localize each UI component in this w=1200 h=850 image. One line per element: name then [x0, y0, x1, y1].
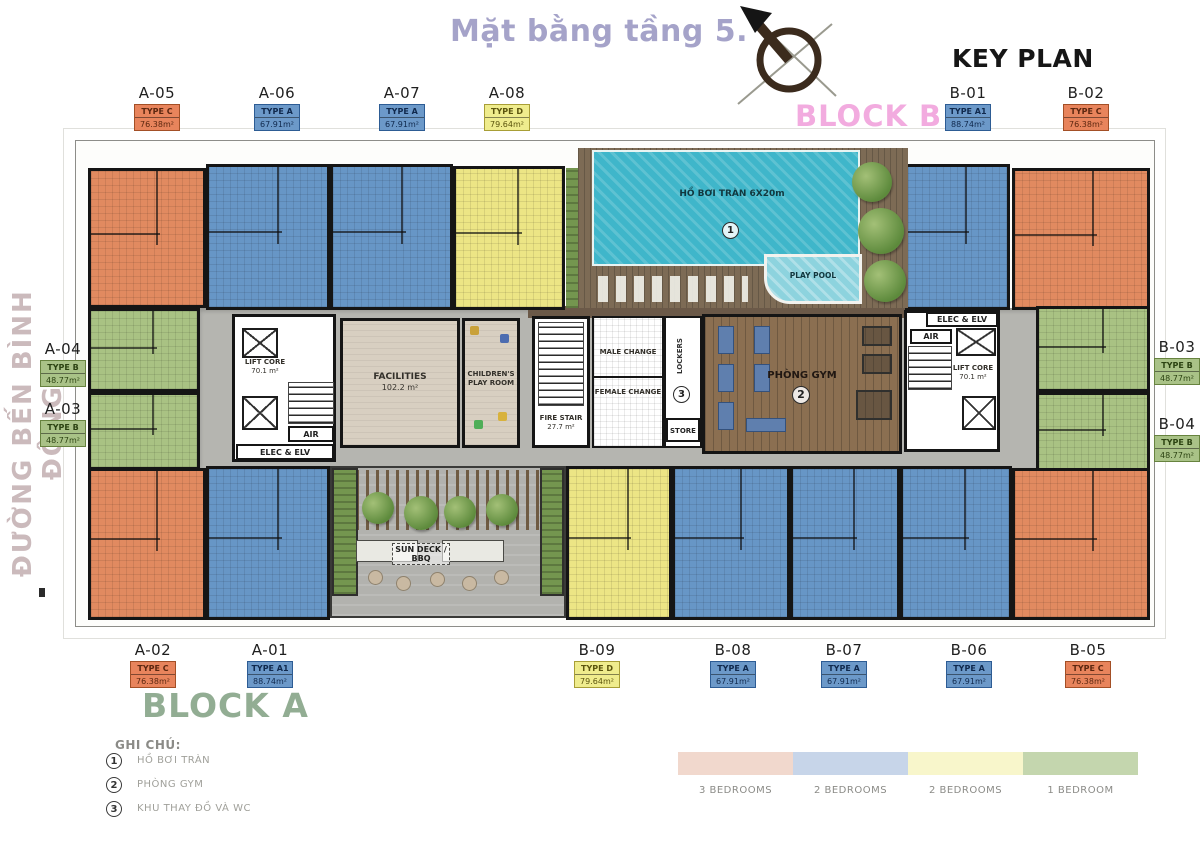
legend-swatch	[1023, 752, 1138, 775]
unit-callout-b-02: B-02TYPE C76.38m²	[1053, 84, 1119, 131]
deck-table	[368, 570, 383, 585]
unit-a01	[206, 466, 330, 620]
female-change-label: FEMALE CHANGE	[592, 388, 664, 397]
unit-a03	[88, 392, 200, 470]
unit-type: TYPE A	[822, 662, 866, 675]
bedroom-legend-swatches	[678, 752, 1138, 775]
children-room-label: CHILDREN'S PLAY ROOM	[462, 370, 520, 388]
unit-callout-a-05: A-05TYPE C76.38m²	[124, 84, 190, 131]
unit-type-badge: TYPE C76.38m²	[130, 661, 176, 688]
legend-swatch	[908, 752, 1023, 775]
room-area: 70.1 m²	[234, 367, 296, 376]
unit-type-badge: TYPE C76.38m²	[134, 104, 180, 131]
unit-type-badge: TYPE B48.77m²	[1154, 358, 1200, 385]
unit-type-badge: TYPE A67.91m²	[946, 661, 992, 688]
unit-area: 48.77m²	[1155, 449, 1199, 461]
unit-callout-a-02: A-02TYPE C76.38m²	[120, 641, 186, 688]
bedroom-legend-labels: 3 BEDROOMS2 BEDROOMS2 BEDROOMS1 BEDROOM	[678, 785, 1138, 796]
tree	[864, 260, 906, 302]
unit-type-badge: TYPE B48.77m²	[40, 420, 86, 447]
pool-marker: 1	[722, 222, 739, 239]
legend-label: 3 BEDROOMS	[678, 785, 793, 796]
unit-area: 76.38m²	[1066, 675, 1110, 687]
unit-id: B-03	[1144, 338, 1200, 356]
unit-type: TYPE A	[380, 105, 424, 118]
unit-id: B-06	[936, 641, 1002, 659]
unit-id: A-07	[369, 84, 435, 102]
stairs	[288, 382, 334, 424]
unit-id: B-01	[935, 84, 1001, 102]
unit-type-badge: TYPE A67.91m²	[379, 104, 425, 131]
unit-type-badge: TYPE A188.74m²	[247, 661, 293, 688]
air-room-right: AIR	[910, 329, 952, 344]
unit-a07	[330, 164, 453, 310]
unit-type: TYPE B	[41, 361, 85, 374]
lift-core-right-label: LIFT CORE 70.1 m²	[946, 364, 1000, 382]
page-title: Mặt bằng tầng 5.	[450, 14, 748, 49]
notes-title: GHI CHÚ:	[115, 738, 181, 752]
elevator-icon	[242, 396, 278, 430]
room-area: 70.1 m²	[946, 373, 1000, 382]
elec-elv-left: ELEC & ELV	[236, 444, 334, 460]
block-a-label: BLOCK A	[142, 686, 309, 725]
unit-type-badge: TYPE A188.74m²	[945, 104, 991, 131]
unit-callout-a-06: A-06TYPE A67.91m²	[244, 84, 310, 131]
unit-type: TYPE A	[947, 662, 991, 675]
unit-id: A-03	[30, 400, 96, 418]
unit-a05	[88, 168, 206, 308]
unit-type: TYPE D	[485, 105, 529, 118]
unit-callout-b-03: B-03TYPE B48.77m²	[1144, 338, 1200, 385]
tree	[486, 494, 518, 526]
edge-dash	[39, 588, 45, 597]
bbq-table	[442, 540, 504, 562]
unit-callout-b-06: B-06TYPE A67.91m²	[936, 641, 1002, 688]
legend-label: 2 BEDROOMS	[793, 785, 908, 796]
unit-id: B-07	[811, 641, 877, 659]
planter	[540, 468, 564, 596]
room-name: LIFT CORE	[946, 364, 1000, 373]
note-label: HỒ BƠI TRÀN	[137, 755, 210, 766]
unit-callout-a-01: A-01TYPE A188.74m²	[237, 641, 303, 688]
deck-table	[396, 576, 411, 591]
unit-area: 88.74m²	[248, 675, 292, 687]
unit-b02	[1012, 168, 1150, 310]
facilities-label: FACILITIES 102.2 m²	[350, 372, 450, 393]
unit-type-badge: TYPE C76.38m²	[1063, 104, 1109, 131]
unit-area: 48.77m²	[41, 434, 85, 446]
unit-callout-b-08: B-08TYPE A67.91m²	[700, 641, 766, 688]
room-area: 27.7 m²	[532, 423, 590, 432]
unit-type: TYPE C	[135, 105, 179, 118]
unit-id: A-01	[237, 641, 303, 659]
elevator-icon	[242, 328, 278, 358]
unit-callout-b-07: B-07TYPE A67.91m²	[811, 641, 877, 688]
lift-core-left-label: LIFT CORE 70.1 m²	[234, 358, 296, 376]
play-equipment	[500, 334, 509, 343]
note-label: PHÒNG GYM	[137, 779, 203, 790]
unit-type-badge: TYPE C76.38m²	[1065, 661, 1111, 688]
unit-b01	[905, 164, 1010, 310]
note-label: KHU THAY ĐỒ VÀ WC	[137, 803, 251, 814]
unit-area: 88.74m²	[946, 118, 990, 130]
gym-mat	[718, 326, 734, 354]
play-equipment	[498, 412, 507, 421]
unit-callout-b-09: B-09TYPE D79.64m²	[564, 641, 630, 688]
deck-table	[494, 570, 509, 585]
swimming-pool	[592, 150, 860, 266]
unit-callout-b-05: B-05TYPE C76.38m²	[1055, 641, 1121, 688]
gym-equipment	[862, 326, 892, 346]
gym-label: PHÒNG GYM	[742, 370, 862, 383]
compass-icon	[728, 0, 840, 112]
unit-area: 76.38m²	[135, 118, 179, 130]
unit-id: B-02	[1053, 84, 1119, 102]
store-room: STORE	[666, 418, 700, 442]
deck-table	[430, 572, 445, 587]
unit-b07	[790, 466, 900, 620]
unit-a04	[88, 308, 200, 392]
unit-type: TYPE C	[1064, 105, 1108, 118]
unit-area: 67.91m²	[711, 675, 755, 687]
legend-swatch	[793, 752, 908, 775]
unit-area: 48.77m²	[41, 374, 85, 386]
tree	[444, 496, 476, 528]
unit-id: A-06	[244, 84, 310, 102]
gym-mat	[718, 402, 734, 430]
gym-mat	[718, 364, 734, 392]
unit-area: 79.64m²	[485, 118, 529, 130]
tree	[858, 208, 904, 254]
unit-type: TYPE B	[1155, 359, 1199, 372]
unit-id: A-04	[30, 340, 96, 358]
unit-area: 79.64m²	[575, 675, 619, 687]
unit-b08	[672, 466, 790, 620]
play-equipment	[470, 326, 479, 335]
floor-plan-page: Mặt bằng tầng 5. KEY PLAN BLOCK B ĐƯỜNG …	[0, 0, 1200, 850]
unit-type: TYPE B	[41, 421, 85, 434]
changing-marker: 3	[673, 386, 690, 403]
unit-type-badge: TYPE A67.91m²	[254, 104, 300, 131]
lounge-chairs	[598, 276, 748, 302]
gym-marker: 2	[792, 386, 810, 404]
unit-callout-a-08: A-08TYPE D79.64m²	[474, 84, 540, 131]
pool-label: HỒ BƠI TRÀN 6X20m	[612, 189, 852, 199]
unit-id: B-05	[1055, 641, 1121, 659]
unit-area: 67.91m²	[822, 675, 866, 687]
unit-type: TYPE A1	[248, 662, 292, 675]
unit-type: TYPE C	[1066, 662, 1110, 675]
unit-area: 48.77m²	[1155, 372, 1199, 384]
note-number-icon: 1	[106, 753, 122, 769]
note-number-icon: 3	[106, 801, 122, 817]
unit-area: 76.38m²	[1064, 118, 1108, 130]
legend-label: 2 BEDROOMS	[908, 785, 1023, 796]
unit-area: 67.91m²	[380, 118, 424, 130]
play-pool-label: PLAY POOL	[770, 271, 856, 280]
unit-type-badge: TYPE D79.64m²	[574, 661, 620, 688]
note-number-icon: 2	[106, 777, 122, 793]
unit-a06	[206, 164, 330, 310]
gym-equipment	[862, 354, 892, 374]
unit-callout-a-07: A-07TYPE A67.91m²	[369, 84, 435, 131]
wall	[592, 376, 664, 378]
legend-label: 1 BEDROOM	[1023, 785, 1138, 796]
unit-type: TYPE D	[575, 662, 619, 675]
unit-callout-a-04: A-04TYPE B48.77m²	[30, 340, 96, 387]
unit-type: TYPE A	[255, 105, 299, 118]
air-room-left: AIR	[288, 426, 334, 442]
unit-id: A-05	[124, 84, 190, 102]
unit-b04	[1036, 392, 1150, 472]
room-name: FIRE STAIR	[532, 414, 590, 423]
sun-deck-label: SUN DECK / BBQ	[392, 543, 450, 565]
unit-b06	[900, 466, 1012, 620]
elec-elv-right: ELEC & ELV	[926, 312, 998, 327]
unit-type-badge: TYPE D79.64m²	[484, 104, 530, 131]
unit-id: B-08	[700, 641, 766, 659]
gym-mat	[754, 326, 770, 354]
unit-b03	[1036, 306, 1150, 392]
elevator-icon	[956, 328, 996, 356]
unit-type: TYPE C	[131, 662, 175, 675]
gym-mat	[746, 418, 786, 432]
unit-type: TYPE A	[711, 662, 755, 675]
changing-rooms	[592, 316, 664, 448]
unit-id: B-09	[564, 641, 630, 659]
unit-type: TYPE A1	[946, 105, 990, 118]
unit-type-badge: TYPE B48.77m²	[1154, 435, 1200, 462]
room-name: FACILITIES	[350, 372, 450, 383]
tree	[362, 492, 394, 524]
unit-b05	[1012, 468, 1150, 620]
key-plan-title: KEY PLAN	[952, 44, 1094, 73]
unit-id: B-04	[1144, 415, 1200, 433]
male-change-label: MALE CHANGE	[592, 348, 664, 357]
unit-type-badge: TYPE A67.91m²	[821, 661, 867, 688]
unit-area: 76.38m²	[131, 675, 175, 687]
unit-type-badge: TYPE B48.77m²	[40, 360, 86, 387]
room-name: LIFT CORE	[234, 358, 296, 367]
unit-area: 67.91m²	[947, 675, 991, 687]
room-area: 102.2 m²	[350, 383, 450, 393]
unit-a08	[453, 166, 565, 310]
unit-b09	[566, 466, 672, 620]
unit-area: 67.91m²	[255, 118, 299, 130]
unit-callout-b-01: B-01TYPE A188.74m²	[935, 84, 1001, 131]
fire-stair-label: FIRE STAIR 27.7 m²	[532, 414, 590, 432]
tree	[404, 496, 438, 530]
unit-id: A-02	[120, 641, 186, 659]
elevator-icon	[962, 396, 996, 430]
unit-callout-b-04: B-04TYPE B48.77m²	[1144, 415, 1200, 462]
unit-type: TYPE B	[1155, 436, 1199, 449]
unit-callout-a-03: A-03TYPE B48.77m²	[30, 400, 96, 447]
gym-equipment	[856, 390, 892, 420]
tree	[852, 162, 892, 202]
unit-type-badge: TYPE A67.91m²	[710, 661, 756, 688]
planter	[332, 468, 358, 596]
play-equipment	[474, 420, 483, 429]
unit-a02	[88, 468, 206, 620]
stairs	[538, 322, 584, 406]
unit-id: A-08	[474, 84, 540, 102]
deck-table	[462, 576, 477, 591]
lockers-label: LOCKERS	[676, 326, 684, 386]
legend-swatch	[678, 752, 793, 775]
